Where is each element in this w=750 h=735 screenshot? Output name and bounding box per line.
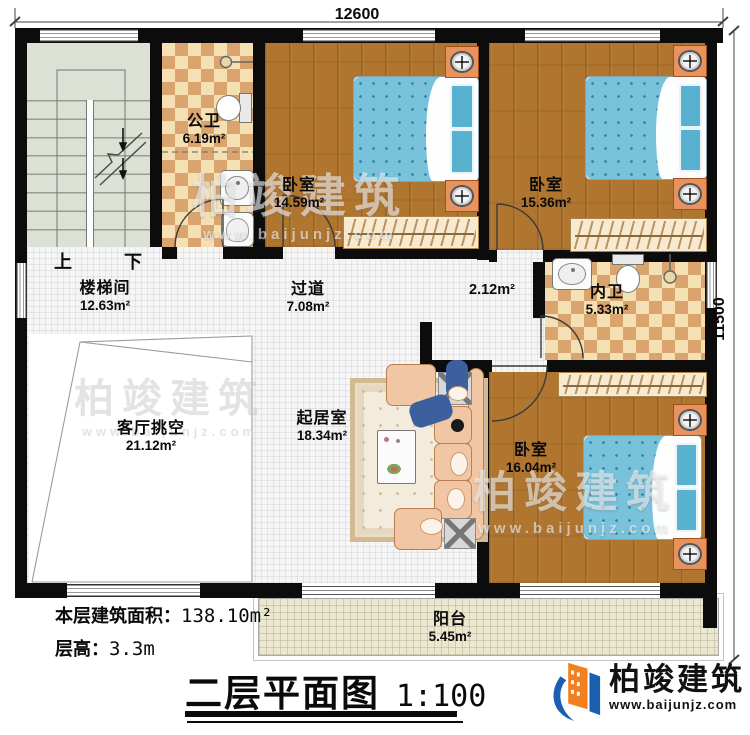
- label-balcony: 阳台5.45m²: [395, 611, 505, 645]
- balcony-slider-door: [520, 586, 660, 595]
- plan-notes: 本层建筑面积：138.10m² 层高：3.3m: [55, 600, 273, 667]
- nightstand-icon: [445, 46, 479, 78]
- cushion: [420, 518, 443, 535]
- label-living-void: 客厅挑空21.12m²: [96, 420, 206, 454]
- label-corridor: 过道7.08m²: [253, 281, 363, 315]
- coffee-table-icon: [377, 430, 416, 484]
- window: [67, 584, 200, 597]
- floor-plan-page: 柏竣建筑 www.baijunjz.com 柏竣建筑 www.baijunjz.…: [0, 0, 750, 735]
- bed-icon: [583, 435, 702, 540]
- nightstand-icon: [673, 538, 707, 570]
- room-living-void-floor: [29, 334, 253, 583]
- label-public-bath: 公卫6.19m²: [149, 113, 259, 147]
- wall: [223, 247, 283, 259]
- title-underline-thin: [187, 721, 463, 723]
- outer-wall-bottom: [660, 583, 717, 598]
- cushion: [450, 452, 468, 476]
- label-bedroom-right: 卧室15.36m²: [491, 177, 601, 211]
- dimension-top-value: 12600: [307, 6, 407, 24]
- label-living: 起居室18.34m²: [267, 410, 377, 444]
- wardrobe-icon: [570, 218, 707, 252]
- cushion: [448, 386, 468, 401]
- side-table-icon: [444, 518, 476, 549]
- logo-name: 柏竣建筑: [609, 664, 745, 697]
- nightstand-icon: [673, 45, 707, 77]
- bed-icon: [353, 76, 479, 182]
- window: [525, 29, 660, 42]
- balcony-slider-window: [302, 586, 435, 595]
- wall: [547, 360, 705, 372]
- dimension-line-right: [729, 26, 739, 664]
- label-stairwell: 楼梯间12.63m²: [50, 280, 160, 314]
- bed-icon: [585, 76, 707, 180]
- logo-building-icon: [545, 652, 603, 724]
- stair-stringer: [86, 100, 94, 247]
- label-vestibule: 2.12m²: [437, 282, 547, 299]
- outer-wall-bottom: [15, 583, 67, 598]
- label-stair-up: 上: [47, 248, 79, 274]
- nightstand-icon: [673, 404, 707, 436]
- label-stair-down: 下: [117, 248, 149, 274]
- logo: 柏竣建筑 www.baijunjz.com: [545, 652, 745, 724]
- wardrobe-icon: [343, 216, 479, 249]
- label-inner-bath: 内卫5.33m²: [552, 284, 662, 318]
- cushion: [447, 488, 465, 510]
- wall: [162, 247, 177, 259]
- window: [303, 29, 435, 42]
- person-head-icon: [451, 419, 464, 432]
- wall: [489, 250, 497, 262]
- window: [16, 263, 27, 318]
- outer-wall-bottom: [435, 583, 520, 598]
- nightstand-icon: [673, 178, 707, 210]
- wardrobe-icon: [558, 372, 707, 397]
- title-underline: [185, 711, 457, 717]
- logo-url: www.baijunjz.com: [609, 697, 745, 712]
- outer-wall-bottom: [200, 583, 302, 598]
- nightstand-icon: [445, 180, 479, 212]
- page-title: 二层平面图1:100: [185, 663, 486, 717]
- label-bedroom-bottom: 卧室16.04m²: [476, 442, 586, 476]
- label-bedroom-top: 卧室14.59m²: [244, 177, 354, 211]
- window: [40, 29, 138, 42]
- dimension-right-value: 11500: [711, 289, 729, 349]
- balcony-wall-stub: [703, 598, 717, 628]
- washer-icon: [221, 212, 254, 247]
